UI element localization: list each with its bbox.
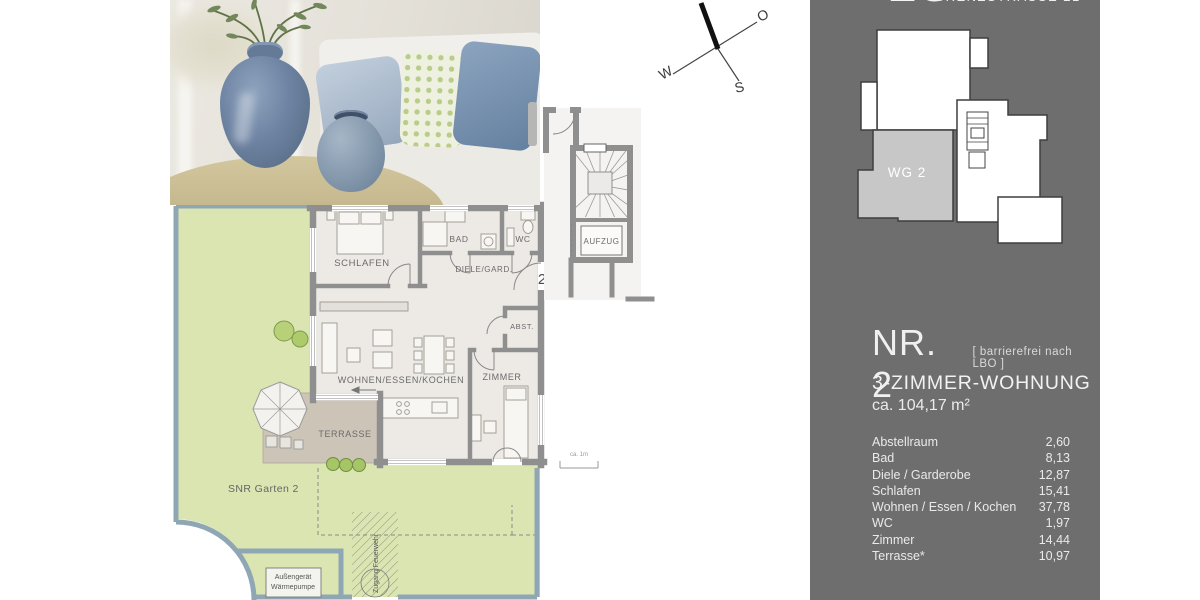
stairwell: AUFZUG	[544, 108, 652, 300]
wc-label: WC	[515, 234, 530, 244]
compass: O W S	[656, 3, 771, 96]
unit-type: 3-ZIMMER-WOHNUNG	[872, 372, 1091, 395]
unit-area: ca. 104,17 m²	[872, 397, 970, 415]
elevator-label: AUFZUG	[584, 237, 620, 246]
room-area-value: 1,97	[1046, 515, 1070, 531]
room-area-value: 8,13	[1046, 450, 1070, 466]
room-area-value: 37,78	[1039, 499, 1070, 515]
room-label: Diele / Garderobe	[872, 467, 971, 483]
zimmer-label: ZIMMER	[482, 372, 521, 382]
room-label: Zimmer	[872, 532, 914, 548]
parasol	[253, 382, 307, 436]
scale-bar: ca. 1m	[560, 452, 598, 468]
heat-pump-label-1: Außengerät	[275, 574, 312, 581]
room-area-value: 10,97	[1039, 548, 1070, 564]
stair-landing	[588, 172, 612, 194]
room-area-value: 15,41	[1039, 483, 1070, 499]
room-row: Bad 8,13	[872, 450, 1070, 466]
floorplan-page: Zugang Feuerwehr SNR Garten 2 Außengerät…	[0, 0, 1200, 600]
room-label: Wohnen / Essen / Kochen	[872, 499, 1016, 515]
building-minimap: WG 2	[810, 0, 1100, 260]
terrace-plants	[327, 458, 366, 472]
room-row: Diele / Garderobe 12,87	[872, 467, 1070, 483]
room-row: Abstellraum 2,60	[872, 434, 1070, 450]
abst-label: ABST.	[510, 322, 534, 331]
small-vase	[317, 116, 385, 192]
room-area-value: 14,44	[1039, 532, 1070, 548]
living-room-photo	[170, 0, 540, 205]
unit-accessibility-note: [ barrierefrei nach LBO ]	[972, 346, 1100, 370]
room-label: Bad	[872, 450, 894, 466]
compass-axis-s	[718, 49, 739, 81]
terrace-label: TERRASSE	[318, 429, 371, 439]
room-row: Wohnen / Essen / Kochen 37,78	[872, 499, 1070, 515]
heat-pump-box	[266, 568, 321, 597]
fire-access-label: Zugang Feuerwehr	[373, 533, 380, 593]
scale-label: ca. 1m	[570, 452, 588, 458]
schlafen-label: SCHLAFEN	[334, 258, 389, 269]
garden-label: SNR Garten 2	[228, 483, 299, 495]
compass-south: S	[733, 78, 746, 96]
minimap-stairs-icon	[967, 112, 988, 168]
room-row: Zimmer 14,44	[872, 532, 1070, 548]
room-row: WC 1,97	[872, 515, 1070, 531]
room-row: Terrasse* 10,97	[872, 548, 1070, 564]
wohnen-label: WOHNEN/ESSEN/KOCHEN	[338, 375, 464, 385]
info-sidebar: EG GRENZSTRASSE 21 WG 2 NR. 2 [ barriere…	[810, 0, 1100, 600]
room-label: Terrasse*	[872, 548, 925, 564]
bad-label: BAD	[449, 234, 468, 244]
room-area-value: 2,60	[1046, 434, 1070, 450]
room-area-value: 12,87	[1039, 467, 1070, 483]
room-label: Abstellraum	[872, 434, 938, 450]
door-handle	[528, 102, 537, 146]
diele-label: DIELE/GARD.	[455, 265, 512, 274]
room-label: WC	[872, 515, 893, 531]
pillow-steel-blue	[452, 40, 540, 152]
room-row: Schlafen 15,41	[872, 483, 1070, 499]
room-area-list: Abstellraum 2,60 Bad 8,13 Diele / Garder…	[872, 434, 1070, 564]
stair-top-marker	[584, 144, 606, 152]
minimap-unit-label: WG 2	[888, 165, 927, 180]
room-label: Schlafen	[872, 483, 921, 499]
compass-west: W	[656, 62, 676, 83]
heat-pump-label-2: Wärmepumpe	[271, 584, 315, 591]
compass-north-needle	[701, 3, 718, 49]
